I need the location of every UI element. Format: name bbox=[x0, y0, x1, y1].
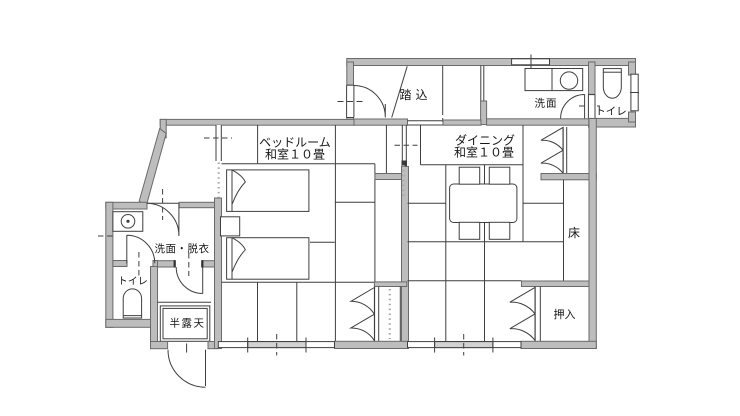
svg-text:押入: 押入 bbox=[554, 307, 576, 321]
svg-text:トイレ: トイレ bbox=[118, 277, 148, 288]
svg-text:床: 床 bbox=[568, 226, 580, 240]
svg-text:踏込: 踏込 bbox=[399, 88, 431, 102]
svg-text:トイレ: トイレ bbox=[595, 106, 627, 118]
svg-text:洗面: 洗面 bbox=[535, 98, 558, 110]
svg-text:和室１０畳: 和室１０畳 bbox=[265, 147, 325, 162]
svg-text:半露天: 半露天 bbox=[170, 316, 206, 329]
svg-text:洗面・脱衣: 洗面・脱衣 bbox=[155, 242, 210, 255]
svg-text:和室１０畳: 和室１０畳 bbox=[454, 145, 514, 160]
